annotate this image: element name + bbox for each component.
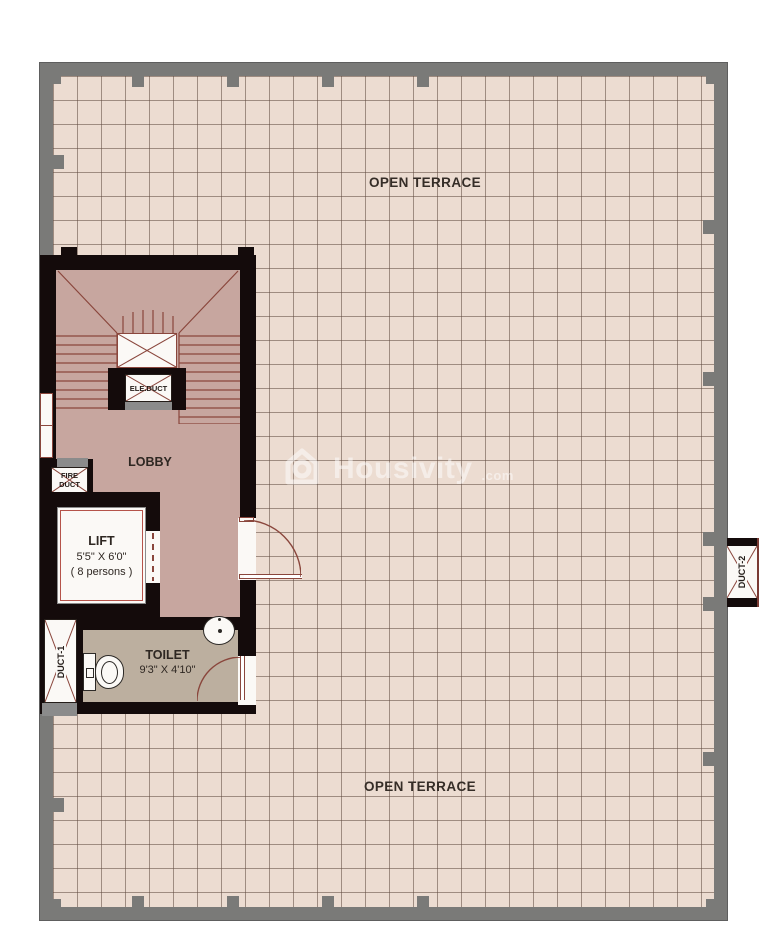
floor-plan: OPEN TERRACE OPEN TERRACE Housivity .com [0,0,768,946]
column-bump [227,896,239,907]
stair-void [117,333,177,368]
core-wall-tab [61,247,77,255]
stair-window [40,393,53,458]
column-bump [703,532,714,546]
lift-label-line3: ( 8 persons ) [58,566,145,578]
column-bump [53,798,64,812]
fire-duct-label-line2: DUCT [52,481,87,489]
ele-duct-box: ELE.DUCT [125,374,172,402]
duct2-box: DUCT-2 [727,538,759,607]
house-icon [280,444,324,493]
washbasin [203,616,235,645]
fire-duct-box: FIRE DUCT [51,467,88,493]
column-bump [53,155,64,169]
lift-cab: LIFT 5'5" X 6'0" ( 8 persons ) [57,507,146,604]
duct1-strip [42,703,77,716]
ele-duct-label: ELE.DUCT [126,385,171,393]
column-bump [322,896,334,907]
lift-door-dashed-line [152,533,154,581]
corner-step [706,76,714,84]
column-bump [322,76,334,87]
duct1-label: DUCT-1 [56,644,66,680]
duct2-label: DUCT-2 [737,553,747,591]
toilet-door-arc [197,657,241,701]
lobby-door-arc [244,520,301,577]
fire-duct-label-line1: FIRE [52,472,87,480]
duct2-wall-bottom [727,598,757,607]
window-mullion [41,425,52,426]
column-bump [132,76,144,87]
wc-flush-line [86,668,94,678]
washbasin-tap [218,618,221,621]
column-bump [227,76,239,87]
lift-door [146,531,160,583]
column-bump [132,896,144,907]
ele-duct-strip [125,402,172,410]
watermark-suffix: .com [482,468,514,483]
lift-label: LIFT 5'5" X 6'0" ( 8 persons ) [58,534,145,578]
watermark: Housivity .com [280,444,514,493]
lobby-label: LOBBY [100,455,200,469]
duct1-box: DUCT-1 [44,619,77,703]
corner-step [53,899,61,907]
washbasin-drain [218,629,222,633]
core-wall-tab [238,247,254,255]
corner-step [53,76,61,84]
column-bump [417,76,429,87]
lift-label-line1: LIFT [58,534,145,548]
column-bump [703,220,714,234]
open-terrace-label-top: OPEN TERRACE [325,175,525,190]
duct2-wall-top [727,538,757,546]
corner-step [706,899,714,907]
column-bump [417,896,429,907]
column-bump [703,597,714,611]
column-bump [703,752,714,766]
watermark-brand: Housivity [333,452,473,486]
lift-label-line2: 5'5" X 6'0" [58,551,145,563]
duct2-x-area: DUCT-2 [727,546,757,598]
fire-duct-strip [57,458,88,467]
open-terrace-label-bottom: OPEN TERRACE [320,779,520,794]
column-bump [703,372,714,386]
